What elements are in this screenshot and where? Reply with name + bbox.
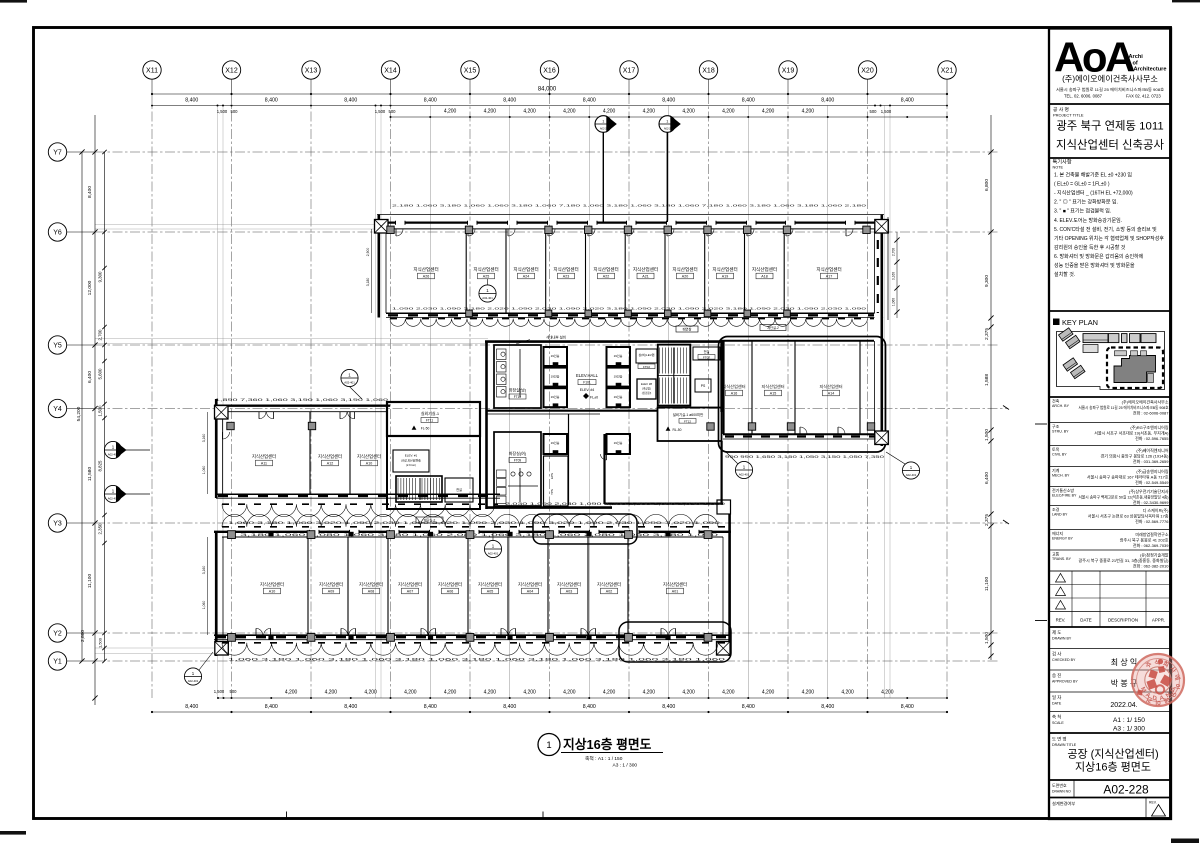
svg-text:A02: A02 [606, 590, 612, 594]
svg-text:19인승: 19인승 [551, 440, 560, 445]
svg-text:8,400: 8,400 [344, 98, 357, 104]
svg-text:54,200: 54,200 [76, 406, 82, 421]
svg-text:서울시 송파구 백제고분로 50길 12(석촌동,새중앙빌딩: 서울시 송파구 백제고분로 50길 12(석촌동,새중앙빌딩 4층) [1079, 494, 1170, 500]
svg-text:전실: 전실 [704, 349, 710, 354]
svg-text:지식산업센터: 지식산업센터 [597, 581, 621, 588]
svg-text:지식산업센터: 지식산업센터 [819, 383, 842, 390]
svg-text:감리원의 승인을 득한 후 시공할 것: 감리원의 승인을 득한 후 시공할 것 [1054, 244, 1126, 251]
svg-text:4,200: 4,200 [484, 109, 497, 115]
svg-text:1,588: 1,588 [984, 374, 990, 386]
svg-text:지식산업센터: 지식산업센터 [478, 581, 502, 588]
svg-text:1,500: 1,500 [375, 109, 386, 114]
svg-text:(유)청정기술개발: (유)청정기술개발 [1140, 552, 1169, 558]
svg-text:(주)RG구조엔지니어링: (주)RG구조엔지니어링 [1130, 424, 1168, 430]
svg-text:8,400: 8,400 [583, 704, 596, 710]
svg-text:배연창: 배연창 [683, 327, 692, 332]
svg-text:X14: X14 [384, 68, 397, 75]
svg-text:2,700: 2,700 [98, 329, 103, 341]
svg-text:500: 500 [230, 689, 238, 694]
svg-text:4,200: 4,200 [523, 690, 536, 696]
svg-text:세대내부 설비: 세대내부 설비 [546, 335, 566, 340]
svg-text:A18: A18 [761, 275, 767, 279]
svg-text:PROJECT TITLE: PROJECT TITLE [1053, 113, 1084, 118]
svg-text:1,890 7,360 1,060 3,190 1,060: 1,890 7,360 1,060 3,190 1,060 3,190 1,06… [215, 398, 388, 402]
svg-text:전기통신소방: 전기통신소방 [1052, 487, 1074, 493]
svg-text:2,030 1,090 2,030 1,090 4,200: 2,030 1,090 2,030 1,090 4,200 2,500 1,09… [505, 502, 725, 506]
svg-text:TPS: TPS [550, 489, 554, 495]
svg-text:검 사: 검 사 [1052, 651, 1061, 658]
svg-text:설계변경여부: 설계변경여부 [1052, 800, 1075, 807]
svg-text:2,350: 2,350 [98, 523, 103, 535]
svg-text:500: 500 [870, 109, 878, 114]
svg-text:1,500: 1,500 [881, 109, 892, 114]
svg-text:8,400: 8,400 [901, 98, 914, 104]
svg-text:1,500: 1,500 [98, 637, 103, 648]
svg-text:8,400: 8,400 [185, 704, 198, 710]
svg-text:DRAWN NO: DRAWN NO [1052, 790, 1071, 794]
svg-text:FT02: FT02 [643, 365, 650, 369]
svg-text:전화 : 02-596-7655: 전화 : 02-596-7655 [1135, 435, 1169, 441]
svg-text:DRAWN BY: DRAWN BY [1052, 637, 1072, 641]
svg-text:ELEV. #1: ELEV. #1 [405, 454, 418, 458]
svg-text:FL-50: FL-50 [421, 427, 430, 431]
svg-text:A26: A26 [423, 275, 429, 279]
svg-text:승 진: 승 진 [1052, 672, 1061, 678]
svg-text:A04: A04 [527, 590, 533, 594]
svg-text:2,900: 2,900 [366, 248, 370, 257]
svg-text:지식산업센터: 지식산업센터 [816, 266, 841, 273]
svg-text:X15: X15 [464, 68, 477, 75]
svg-text:APPROVED BY: APPROVED BY [1052, 680, 1078, 684]
svg-text:6,800: 6,800 [984, 179, 990, 191]
svg-text:X19: X19 [782, 68, 795, 75]
svg-text:(비상,피난용엘베): (비상,피난용엘베) [401, 458, 421, 462]
svg-text:3,180: 3,180 [366, 278, 370, 287]
svg-text:RL-50: RL-50 [673, 428, 682, 432]
svg-text:서울시 서초구 논현로 63 상몽빌딩사옥타워 17층: 서울시 서초구 논현로 63 상몽빌딩사옥타워 17층 [1088, 513, 1169, 519]
svg-text:Y2: Y2 [53, 631, 62, 638]
svg-text:ELEV.HALL: ELEV.HALL [576, 373, 599, 378]
svg-text:도면번호: 도면번호 [1052, 782, 1067, 788]
svg-text:4,200: 4,200 [444, 109, 457, 115]
svg-text:(주)베이직엔지니어: (주)베이직엔지니어 [1136, 447, 1168, 453]
svg-text:A16: A16 [731, 392, 737, 396]
svg-text:4,200: 4,200 [603, 690, 616, 696]
svg-text:4,200: 4,200 [841, 690, 854, 696]
svg-text:4,200: 4,200 [643, 109, 656, 115]
svg-text:4,200: 4,200 [444, 690, 457, 696]
svg-text:8,400: 8,400 [583, 98, 596, 104]
svg-text:3,160: 3,160 [202, 434, 206, 443]
svg-text:지식산업센터: 지식산업센터 [761, 383, 784, 390]
svg-text:A02-401: A02-401 [906, 473, 917, 477]
svg-text:Y6: Y6 [53, 230, 62, 237]
svg-text:CIVIL BY: CIVIL BY [1052, 453, 1067, 457]
svg-text:토목: 토목 [1052, 447, 1060, 452]
svg-text:Y1: Y1 [53, 659, 62, 666]
svg-text:1,500: 1,500 [217, 109, 228, 114]
svg-text:FL±0: FL±0 [590, 396, 598, 400]
svg-text:STRU. BY: STRU. BY [1052, 430, 1069, 434]
svg-text:8,400: 8,400 [503, 704, 516, 710]
svg-text:8,400: 8,400 [424, 704, 437, 710]
svg-text:A1 : 1/ 150: A1 : 1/ 150 [1113, 717, 1145, 724]
svg-text:A23: A23 [563, 275, 569, 279]
svg-text:DRAWN TITLE: DRAWN TITLE [1052, 743, 1077, 747]
svg-text:DESCRIPTION: DESCRIPTION [1108, 618, 1138, 623]
svg-text:2,375: 2,375 [984, 514, 990, 526]
svg-text:서울시 송파구 법원로 11길 25 에이치비즈니스파크B동: 서울시 송파구 법원로 11길 25 에이치비즈니스파크B동 908호 [1079, 404, 1169, 410]
svg-text:2,860: 2,860 [80, 630, 86, 642]
svg-text:8,400: 8,400 [185, 98, 198, 104]
svg-text:4,200: 4,200 [285, 690, 298, 696]
svg-text:19인승: 19인승 [551, 394, 560, 399]
svg-text:1,060 3,180 1,060 3,020 1,090: 1,060 3,180 1,060 3,020 1,090 2,030 1,09… [228, 521, 720, 525]
svg-text:8,400: 8,400 [821, 98, 834, 104]
svg-text:FT09: FT09 [514, 459, 522, 463]
svg-text:기타 OPENING 위치는 각 협력업체 및 SHOP작성: 기타 OPENING 위치는 각 협력업체 및 SHOP작성후 [1054, 235, 1164, 242]
svg-text:X17: X17 [623, 68, 636, 75]
svg-text:- 지식산업센터 _ (16TH EL +72,000): - 지식산업센터 _ (16TH EL +72,000) [1054, 190, 1133, 197]
svg-text:8,400: 8,400 [503, 98, 516, 104]
svg-text:지식산업센터: 지식산업센터 [672, 266, 697, 273]
svg-text:축척 : A1 : 1 / 150: 축척 : A1 : 1 / 150 [585, 755, 623, 762]
svg-text:ARCH. BY: ARCH. BY [1052, 404, 1070, 408]
svg-text:8,825: 8,825 [98, 460, 103, 472]
svg-text:X21: X21 [941, 68, 954, 75]
svg-text:전화 : 02-569-7776: 전화 : 02-569-7776 [1135, 518, 1169, 524]
svg-text:F101: F101 [583, 381, 591, 385]
svg-text:A10: A10 [269, 590, 275, 594]
svg-text:11,100: 11,100 [87, 574, 93, 589]
svg-text:1. 본 건축물 해발기준 EL ±0 +230 임: 1. 본 건축물 해발기준 EL ±0 +230 임 [1054, 172, 1132, 179]
svg-text:2,375: 2,375 [984, 328, 990, 340]
svg-text:990 990 1,650 3,150 1,050 3,15: 990 990 1,650 3,150 1,050 3,150 1,050 7,… [725, 455, 884, 459]
svg-text:지식산업센터: 지식산업센터 [518, 581, 542, 588]
svg-text:5. CON'C타설 전 설비, 전기, 소방 등의 슬리: 5. CON'C타설 전 설비, 전기, 소방 등의 슬리브 및 [1054, 226, 1157, 233]
svg-text:실외기실-1: 실외기실-1 [421, 410, 440, 416]
svg-text:지식산업센터: 지식산업센터 [319, 581, 343, 588]
svg-text:지식산업센터: 지식산업센터 [438, 581, 462, 588]
svg-text:3. " ■ " 표기는 점검볼럭 임.: 3. " ■ " 표기는 점검볼럭 임. [1054, 208, 1111, 215]
svg-text:4. ELEV.도어는 방화승강기문임.: 4. ELEV.도어는 방화승강기문임. [1054, 217, 1122, 224]
svg-text:X16: X16 [543, 68, 556, 75]
svg-text:A25: A25 [483, 275, 489, 279]
svg-text:미래방염절학연구소: 미래방염절학연구소 [1135, 531, 1168, 537]
svg-text:8,400: 8,400 [265, 704, 278, 710]
svg-text:SCALE: SCALE [1052, 721, 1064, 725]
svg-text:DATE: DATE [1080, 618, 1091, 623]
svg-text:FT11: FT11 [426, 419, 433, 423]
svg-text:8,400: 8,400 [901, 704, 914, 710]
svg-text:지식산업센터: 지식산업센터 [633, 266, 658, 273]
svg-text:A02-401: A02-401 [188, 679, 199, 683]
svg-text:상(비)LEV편: 상(비)LEV편 [639, 352, 655, 357]
svg-text:4,200: 4,200 [484, 690, 497, 696]
svg-text:FT12: FT12 [684, 419, 691, 423]
svg-text:1: 1 [602, 119, 604, 123]
svg-text:A19: A19 [722, 275, 728, 279]
svg-text:(주)급송엔지니어링: (주)급송엔지니어링 [1136, 468, 1168, 474]
svg-text:Y5: Y5 [53, 343, 62, 350]
svg-text:Y3: Y3 [53, 521, 62, 528]
svg-text:2022.04.: 2022.04. [1110, 702, 1137, 709]
svg-text:4,200: 4,200 [404, 690, 417, 696]
svg-text:공장 (지식산업센터): 공장 (지식산업센터) [1067, 748, 1158, 761]
svg-text:A08: A08 [368, 590, 374, 594]
svg-text:1,500: 1,500 [98, 405, 103, 417]
svg-text:8,400: 8,400 [344, 704, 357, 710]
svg-text:DATE: DATE [1052, 702, 1062, 706]
svg-text:지식산업센터: 지식산업센터 [413, 266, 438, 273]
svg-text:6,400: 6,400 [87, 371, 93, 383]
svg-text:X13: X13 [305, 68, 318, 75]
svg-text:A02-401: A02-401 [344, 380, 355, 384]
svg-text:Y7: Y7 [53, 150, 62, 157]
svg-text:A17: A17 [826, 275, 832, 279]
svg-text:1,060: 1,060 [202, 601, 206, 610]
svg-text:12,000: 12,000 [87, 280, 93, 295]
svg-text:19인승: 19인승 [551, 374, 560, 379]
svg-text:FAX 02. 412. 0723: FAX 02. 412. 0723 [1126, 94, 1161, 99]
svg-text:구조: 구조 [1052, 424, 1060, 429]
svg-text:500: 500 [389, 109, 397, 114]
svg-text:A05: A05 [487, 590, 493, 594]
svg-text:9,300: 9,300 [98, 271, 103, 283]
svg-text:X20: X20 [861, 68, 874, 75]
svg-text:지식산업센터: 지식산업센터 [260, 581, 284, 588]
svg-text:제 도: 제 도 [1052, 629, 1061, 636]
svg-text:지식산업센터: 지식산업센터 [398, 581, 422, 588]
svg-text:지식산업센터: 지식산업센터 [252, 453, 276, 460]
svg-text:지식산업센터: 지식산업센터 [557, 581, 581, 588]
svg-text:4,200: 4,200 [722, 690, 735, 696]
svg-text:11,580: 11,580 [87, 467, 93, 482]
svg-text:X12: X12 [225, 68, 238, 75]
svg-text:(2.9 ton): (2.9 ton) [406, 463, 416, 467]
svg-text:AoA: AoA [1054, 34, 1135, 81]
svg-text:1,500: 1,500 [984, 429, 990, 441]
svg-text:4,200: 4,200 [682, 109, 695, 115]
svg-text:건축: 건축 [1052, 397, 1060, 403]
svg-text:Architecture: Architecture [1134, 67, 1167, 73]
svg-text:8,400: 8,400 [742, 704, 755, 710]
svg-text:지상16층 평면도: 지상16층 평면도 [563, 737, 652, 752]
svg-text:(주)상우전기기술단지사: (주)상우전기기술단지사 [1129, 488, 1169, 494]
svg-text:조경: 조경 [1052, 506, 1060, 512]
svg-text:2,180 1,060 3,180 1,060 1,060: 2,180 1,060 3,180 1,060 1,060 3,180 1,06… [392, 204, 867, 208]
svg-text:서울시 서초구 서초대로 19(서초동, 무지개A): 서울시 서초구 서초대로 19(서초동, 무지개A) [1094, 430, 1169, 436]
svg-text:TEL. 02. 6006. 0087: TEL. 02. 6006. 0087 [1064, 94, 1103, 99]
svg-text:A02-401: A02-401 [488, 551, 499, 555]
svg-text:3,160: 3,160 [202, 566, 206, 575]
svg-text:PS: PS [701, 384, 706, 388]
svg-text:A03: A03 [566, 590, 572, 594]
svg-text:FT07: FT07 [703, 355, 710, 359]
svg-text:A11: A11 [261, 462, 267, 466]
svg-text:광주 북구 연제동 1011: 광주 북구 연제동 1011 [1056, 120, 1163, 133]
svg-text:서울시 송파구 법원로 11길 25 에이치비즈니스파크B동: 서울시 송파구 법원로 11길 25 에이치비즈니스파크B동 908호 [1056, 86, 1164, 92]
svg-text:MECH. BY: MECH. BY [1052, 474, 1070, 478]
svg-text:19인승: 19인승 [614, 394, 623, 399]
svg-text:전화 : 02-3430-9699: 전화 : 02-3430-9699 [1133, 499, 1169, 505]
svg-text:지식산업센터: 지식산업센터 [752, 266, 777, 273]
svg-text:8,400: 8,400 [265, 98, 278, 104]
svg-text:X18: X18 [702, 68, 715, 75]
svg-text:에너지: 에너지 [1052, 530, 1063, 536]
svg-text:19인승: 19인승 [614, 374, 623, 379]
svg-text:4,200: 4,200 [603, 109, 616, 115]
svg-text:지식산업센터: 지식산업센터 [663, 581, 687, 588]
svg-text:2,700: 2,700 [892, 248, 896, 256]
svg-text:A06: A06 [447, 590, 453, 594]
svg-text:8,400: 8,400 [87, 186, 93, 198]
svg-text:일 자: 일 자 [1052, 694, 1061, 701]
svg-text:REV.: REV. [1149, 801, 1157, 805]
svg-text:전실: 전실 [456, 487, 462, 492]
svg-text:4,200: 4,200 [802, 690, 815, 696]
svg-text:A24: A24 [523, 275, 529, 279]
svg-text:1: 1 [666, 119, 668, 123]
svg-text:경기 의왕시 중앙구 봉담로 126 (1914동): 경기 의왕시 중앙구 봉담로 126 (1914동) [1101, 453, 1170, 459]
svg-text:19인승: 19인승 [614, 353, 623, 358]
svg-text:A14: A14 [828, 392, 834, 396]
svg-text:19인승: 19인승 [551, 353, 560, 358]
svg-text:(비상용): (비상용) [642, 387, 651, 391]
svg-text:4,200: 4,200 [682, 690, 695, 696]
svg-text:A02-2: A02-2 [600, 127, 607, 131]
svg-text:NOTE: NOTE [1053, 166, 1064, 170]
svg-text:지식산업센터: 지식산업센터 [473, 266, 498, 273]
svg-text:6. 방화셔터 및 방화문은 갑리움의 숭인하에: 6. 방화셔터 및 방화문은 갑리움의 숭인하에 [1054, 253, 1144, 260]
svg-text:1,060: 1,060 [892, 298, 896, 306]
svg-text:화장실(남): 화장실(남) [509, 387, 527, 393]
svg-text:A02-2: A02-2 [664, 127, 671, 131]
svg-text:4,200: 4,200 [523, 109, 536, 115]
svg-text:8,400: 8,400 [821, 704, 834, 710]
svg-text:4,200: 4,200 [881, 690, 894, 696]
svg-text:지상16층 평면도: 지상16층 평면도 [1075, 761, 1151, 774]
svg-text:축 척: 축 척 [1052, 714, 1061, 721]
svg-text:8,400: 8,400 [662, 704, 675, 710]
svg-text:X11: X11 [146, 68, 158, 75]
svg-text:전화 : 02-6006-0087: 전화 : 02-6006-0087 [1133, 410, 1169, 416]
svg-text:지식산업센터: 지식산업센터 [359, 581, 383, 588]
svg-text:1,060 3,180 1,060 3,180 1,060: 1,060 3,180 1,060 3,180 1,060 3,180 1,06… [228, 658, 725, 662]
svg-text:(주)에이오에이건축사사무소: (주)에이오에이건축사사무소 [1062, 74, 1158, 84]
svg-text:전화 : 062-369-7039: 전화 : 062-369-7039 [1133, 542, 1169, 548]
svg-text:EPS: EPS [550, 473, 554, 479]
svg-text:설비기실-1 ø600미만: 설비기실-1 ø600미만 [673, 412, 703, 417]
svg-text:지식산업센터: 지식산업센터 [712, 266, 737, 273]
svg-text:지식산업센터: 지식산업센터 [593, 266, 618, 273]
svg-text:REV.: REV. [1056, 618, 1066, 623]
svg-text:500: 500 [231, 109, 239, 114]
svg-text:4,200: 4,200 [802, 109, 815, 115]
svg-text:ELEV. #8: ELEV. #8 [641, 382, 653, 386]
svg-text:LAND BY: LAND BY [1052, 513, 1068, 517]
svg-text:계단실-2: 계단실-2 [767, 325, 779, 330]
svg-text:기계: 기계 [1052, 467, 1060, 473]
svg-text:1,060: 1,060 [202, 466, 206, 475]
svg-text:교통: 교통 [1052, 550, 1060, 556]
svg-text:ELEC/FIRE BY: ELEC/FIRE BY [1052, 494, 1077, 498]
svg-text:최 상 익: 최 상 익 [1111, 657, 1138, 667]
svg-text:도 면 명: 도 면 명 [1052, 736, 1067, 742]
svg-text:지식산업센터: 지식산업센터 [513, 266, 538, 273]
svg-text:A02-401: A02-401 [739, 472, 750, 476]
svg-text:4,200: 4,200 [762, 690, 775, 696]
svg-text:Archi: Archi [1129, 54, 1144, 60]
svg-text:11,100: 11,100 [984, 577, 990, 592]
svg-text:5,600: 5,600 [98, 368, 103, 380]
svg-text:A21: A21 [642, 275, 648, 279]
svg-text:2. " ◎ " 표기는 강화방화문 임.: 2. " ◎ " 표기는 강화방화문 임. [1054, 199, 1118, 206]
svg-text:4,200: 4,200 [563, 109, 576, 115]
svg-text:3,160: 3,160 [892, 272, 896, 280]
svg-text:특기사항: 특기사항 [1053, 158, 1072, 166]
svg-text:광주시 북구 용봉로 41 202호: 광주시 북구 용봉로 41 202호 [1120, 537, 1169, 543]
svg-text:4,200: 4,200 [364, 690, 377, 696]
svg-text:ELEV. #4: ELEV. #4 [580, 388, 595, 392]
svg-text:19인승: 19인승 [614, 440, 623, 445]
svg-text:설치할 것.: 설치할 것. [1054, 271, 1075, 278]
svg-text:4,200: 4,200 [643, 690, 656, 696]
svg-text:4,200: 4,200 [722, 109, 735, 115]
svg-text:A10: A10 [366, 462, 372, 466]
svg-text:A3 : 1/ 300: A3 : 1/ 300 [1113, 726, 1145, 733]
svg-text:서울시 송파구 송파대로 167 테라타워 A동 717호: 서울시 송파구 송파대로 167 테라타워 A동 717호 [1087, 474, 1169, 480]
svg-text:( EL±0 = GL±0 = 1FL±0 ): ( EL±0 = GL±0 = 1FL±0 ) [1054, 182, 1110, 188]
svg-text:6,400: 6,400 [984, 472, 990, 484]
svg-text:1,500: 1,500 [214, 689, 225, 694]
svg-text:1,500: 1,500 [984, 632, 990, 644]
svg-text:A09: A09 [328, 590, 334, 594]
svg-text:A12: A12 [327, 462, 333, 466]
svg-text:A07: A07 [407, 590, 413, 594]
svg-text:전화 : 062-382-2010: 전화 : 062-382-2010 [1133, 563, 1169, 569]
svg-text:지식산업센터: 지식산업센터 [722, 383, 745, 390]
svg-text:A02-228: A02-228 [1103, 783, 1149, 797]
svg-text:A15: A15 [770, 392, 776, 396]
svg-text:4,200: 4,200 [762, 109, 775, 115]
svg-text:성능 인증을 받은 방화셔터 및 방화문을: 성능 인증을 받은 방화셔터 및 방화문을 [1054, 262, 1135, 269]
svg-text:A20: A20 [682, 275, 688, 279]
svg-text:CHECKED BY: CHECKED BY [1052, 658, 1076, 662]
svg-text:8,400: 8,400 [662, 98, 675, 104]
svg-text:TRANS. BY: TRANS. BY [1052, 557, 1072, 561]
svg-text:지식산업센터: 지식산업센터 [318, 453, 342, 460]
svg-text:지식산업센터: 지식산업센터 [357, 453, 381, 460]
svg-text:디 스케이프(주): 디 스케이프(주) [1143, 507, 1170, 513]
svg-text:4,200: 4,200 [563, 690, 576, 696]
svg-text:(주)에이오에이건축사사무소: (주)에이오에이건축사사무소 [1122, 399, 1169, 405]
svg-text:화장실(여): 화장실(여) [509, 450, 527, 456]
svg-text:Y4: Y4 [53, 406, 62, 413]
svg-text:ENERGY BY: ENERGY BY [1052, 537, 1074, 541]
svg-text:A02-401: A02-401 [482, 296, 493, 300]
svg-text:1: 1 [546, 740, 551, 751]
svg-text:지식산업센터: 지식산업센터 [553, 266, 578, 273]
svg-text:8,400: 8,400 [424, 98, 437, 104]
svg-text:APPR.: APPR. [1152, 618, 1165, 623]
svg-text:광주시 북구 중흥로 21번길 31, 3층(중흥동, 중화: 광주시 북구 중흥로 21번길 31, 3층(중흥동, 중화빌딩) [1079, 557, 1170, 563]
svg-text:4,200: 4,200 [325, 690, 338, 696]
svg-text:A01: A01 [672, 590, 678, 594]
svg-text:84,000: 84,000 [538, 87, 557, 93]
svg-text:전화 : 031-369-2659: 전화 : 031-369-2659 [1133, 458, 1169, 464]
svg-text:9,300: 9,300 [984, 275, 990, 287]
